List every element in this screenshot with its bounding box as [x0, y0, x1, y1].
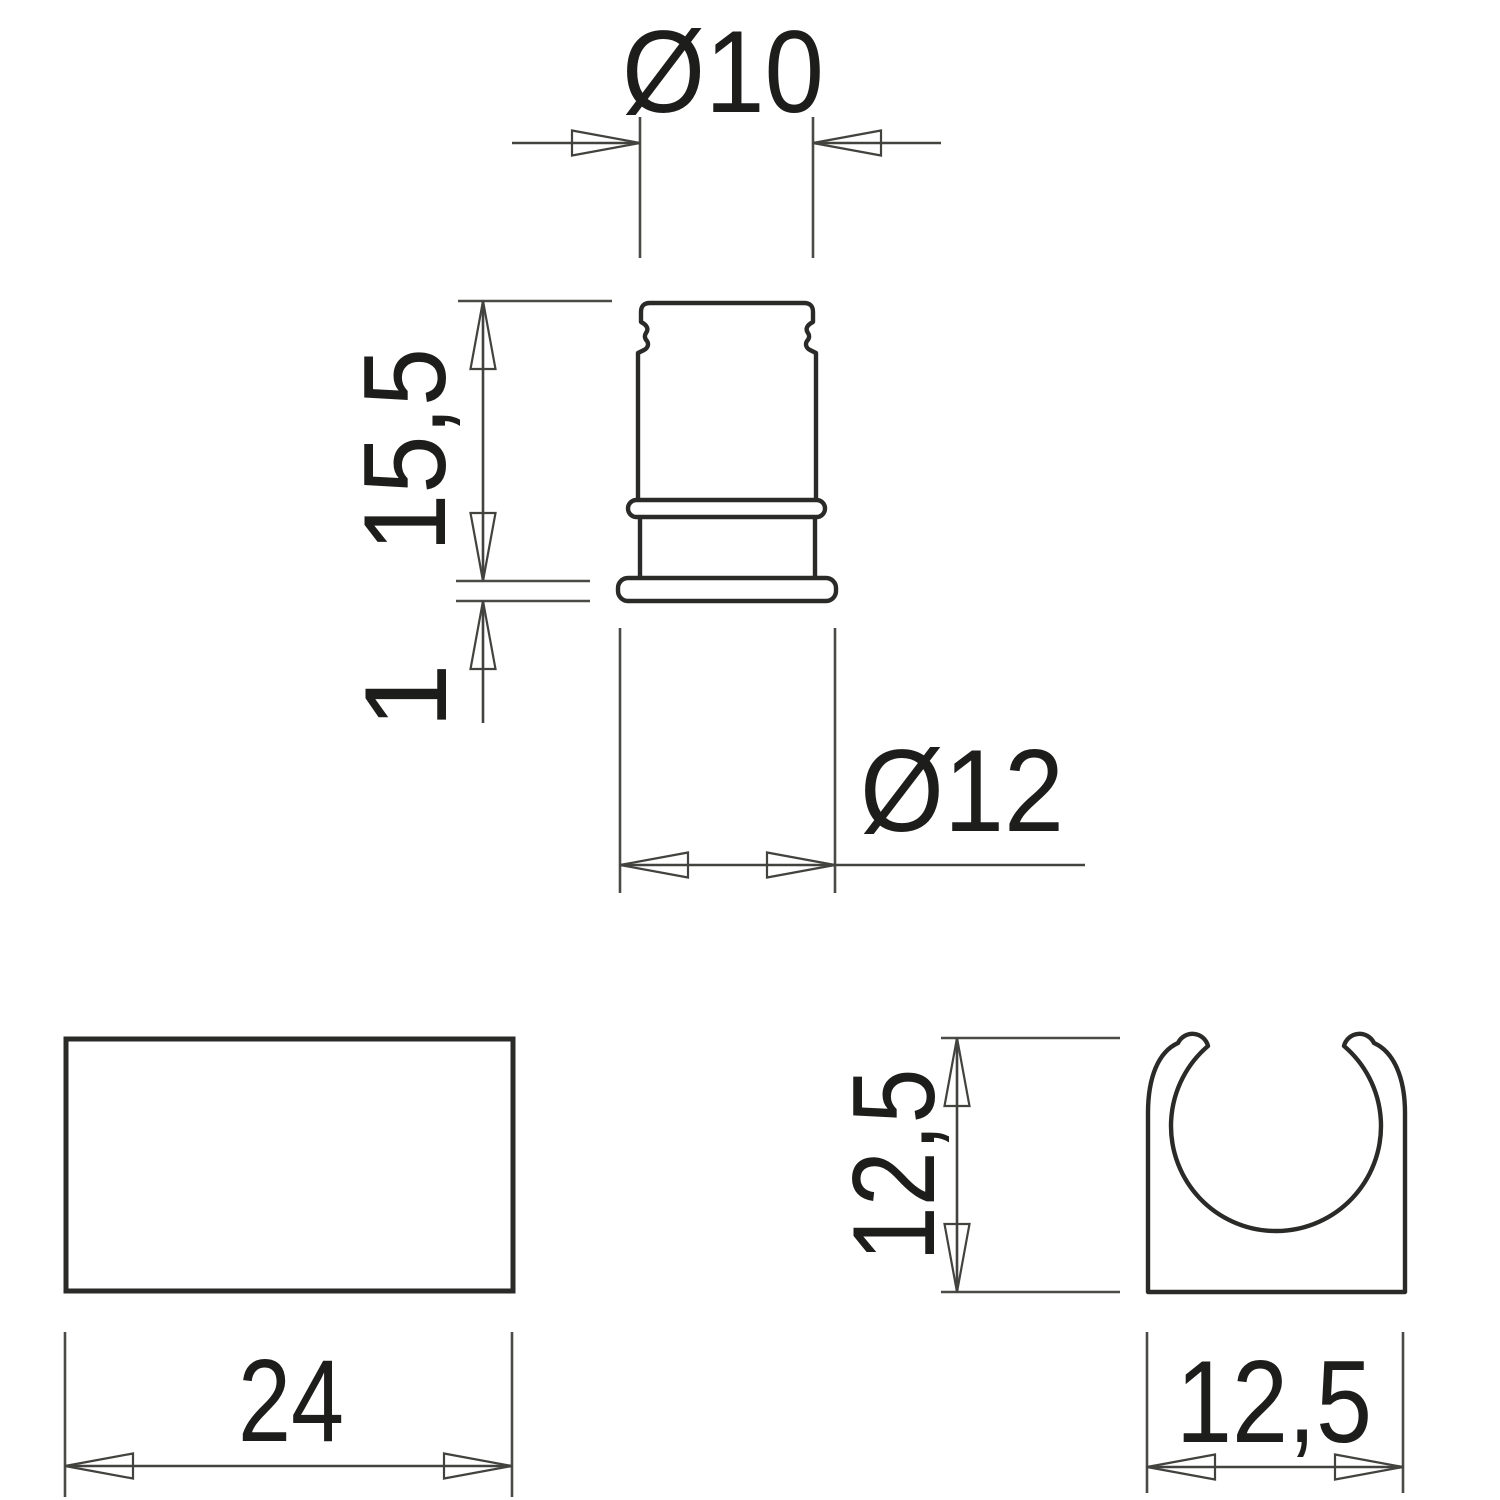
dim-top-diameter: Ø10 — [512, 6, 941, 258]
dim-body-height: 15,5 — [339, 301, 612, 581]
front-view — [618, 303, 836, 601]
dim-top-diameter-label: Ø10 — [622, 6, 824, 137]
side-view — [66, 1039, 513, 1291]
technical-drawing: Ø10 15,5 1 Ø12 — [0, 0, 1500, 1500]
clip-profile-outline — [1148, 1034, 1405, 1292]
dim-clip-height-label: 12,5 — [828, 1069, 959, 1262]
clip-side-outline — [66, 1039, 513, 1291]
dim-body-height-label: 15,5 — [339, 348, 470, 552]
dim-clip-height: 12,5 — [828, 1038, 1120, 1292]
technical-drawing-canvas: Ø10 15,5 1 Ø12 — [0, 0, 1500, 1500]
dim-flange-thickness-label: 1 — [340, 663, 471, 728]
plug-flange — [618, 578, 836, 601]
dim-clip-width-label: 12,5 — [1176, 1336, 1372, 1467]
plug-body-outline — [638, 303, 816, 508]
dim-flange-thickness: 1 — [340, 581, 590, 729]
dim-clip-width: 12,5 — [1147, 1332, 1403, 1493]
profile-view — [1148, 1034, 1405, 1292]
dim-flange-diameter-label: Ø12 — [860, 725, 1064, 856]
dim-flange-diameter: Ø12 — [620, 628, 1085, 893]
dim-clip-length: 24 — [65, 1332, 512, 1497]
dim-clip-length-label: 24 — [238, 1335, 344, 1466]
plug-ring — [628, 500, 825, 517]
